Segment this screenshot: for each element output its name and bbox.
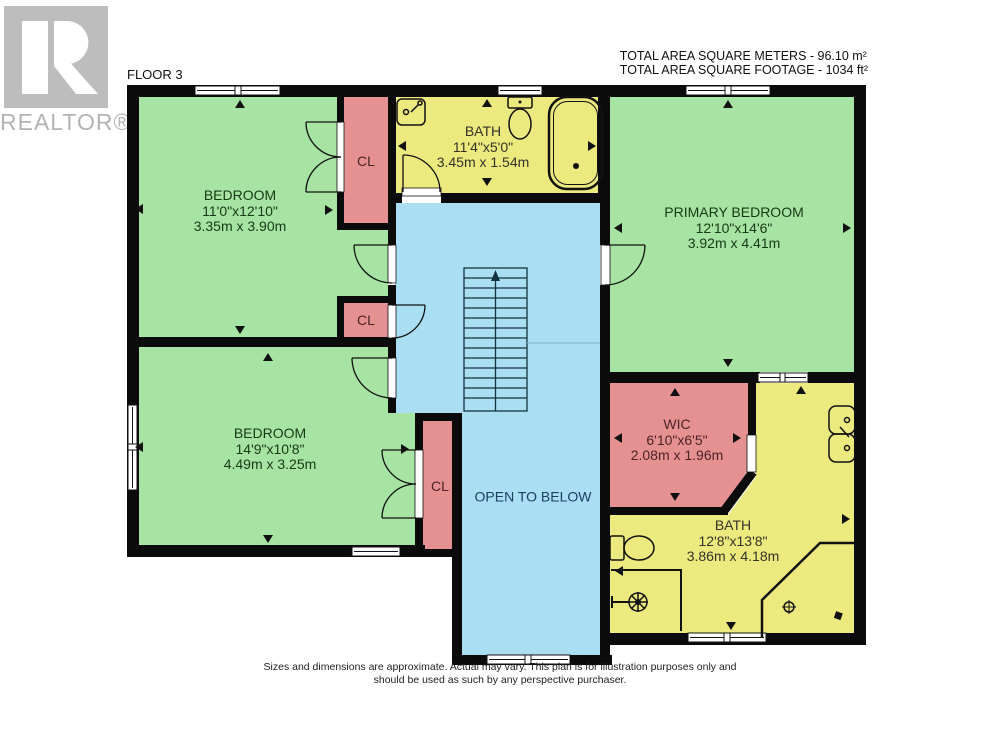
bath-2-label: BATH 12'8"x13'8" 3.86m x 4.18m bbox=[687, 518, 780, 565]
closet-2-label: CL bbox=[357, 312, 375, 328]
window-icon bbox=[688, 633, 766, 642]
bath-1-label: BATH 11'4"x5'0" 3.45m x 1.54m bbox=[437, 124, 530, 171]
primary-bedroom-label: PRIMARY BEDROOM 12'10"x14'6" 3.92m x 4.4… bbox=[664, 205, 804, 252]
closet-1-label: CL bbox=[357, 153, 375, 169]
bedroom-2-label: BEDROOM 14'9"x10'8" 4.49m x 3.25m bbox=[224, 426, 317, 473]
open-to-below-label: OPEN TO BELOW bbox=[475, 489, 592, 505]
bedroom-1-label: BEDROOM 11'0"x12'10" 3.35m x 3.90m bbox=[194, 188, 287, 235]
floorplan-page: REALTOR® FLOOR 3 TOTAL AREA SQUARE METER… bbox=[0, 0, 1000, 735]
window-icon bbox=[498, 86, 542, 95]
disclaimer: Sizes and dimensions are approximate. Ac… bbox=[150, 661, 850, 687]
window-icon bbox=[352, 547, 400, 556]
floorplan-drawing bbox=[0, 0, 1000, 735]
wic-label: WIC 6'10"x6'5" 2.08m x 1.96m bbox=[631, 417, 724, 464]
bedroom-1-vestibule bbox=[344, 229, 388, 303]
window-icon bbox=[686, 86, 770, 95]
cased-opening bbox=[758, 373, 808, 382]
window-icon bbox=[195, 86, 280, 95]
window-icon bbox=[128, 405, 137, 490]
closet-3-label: CL bbox=[431, 478, 449, 494]
